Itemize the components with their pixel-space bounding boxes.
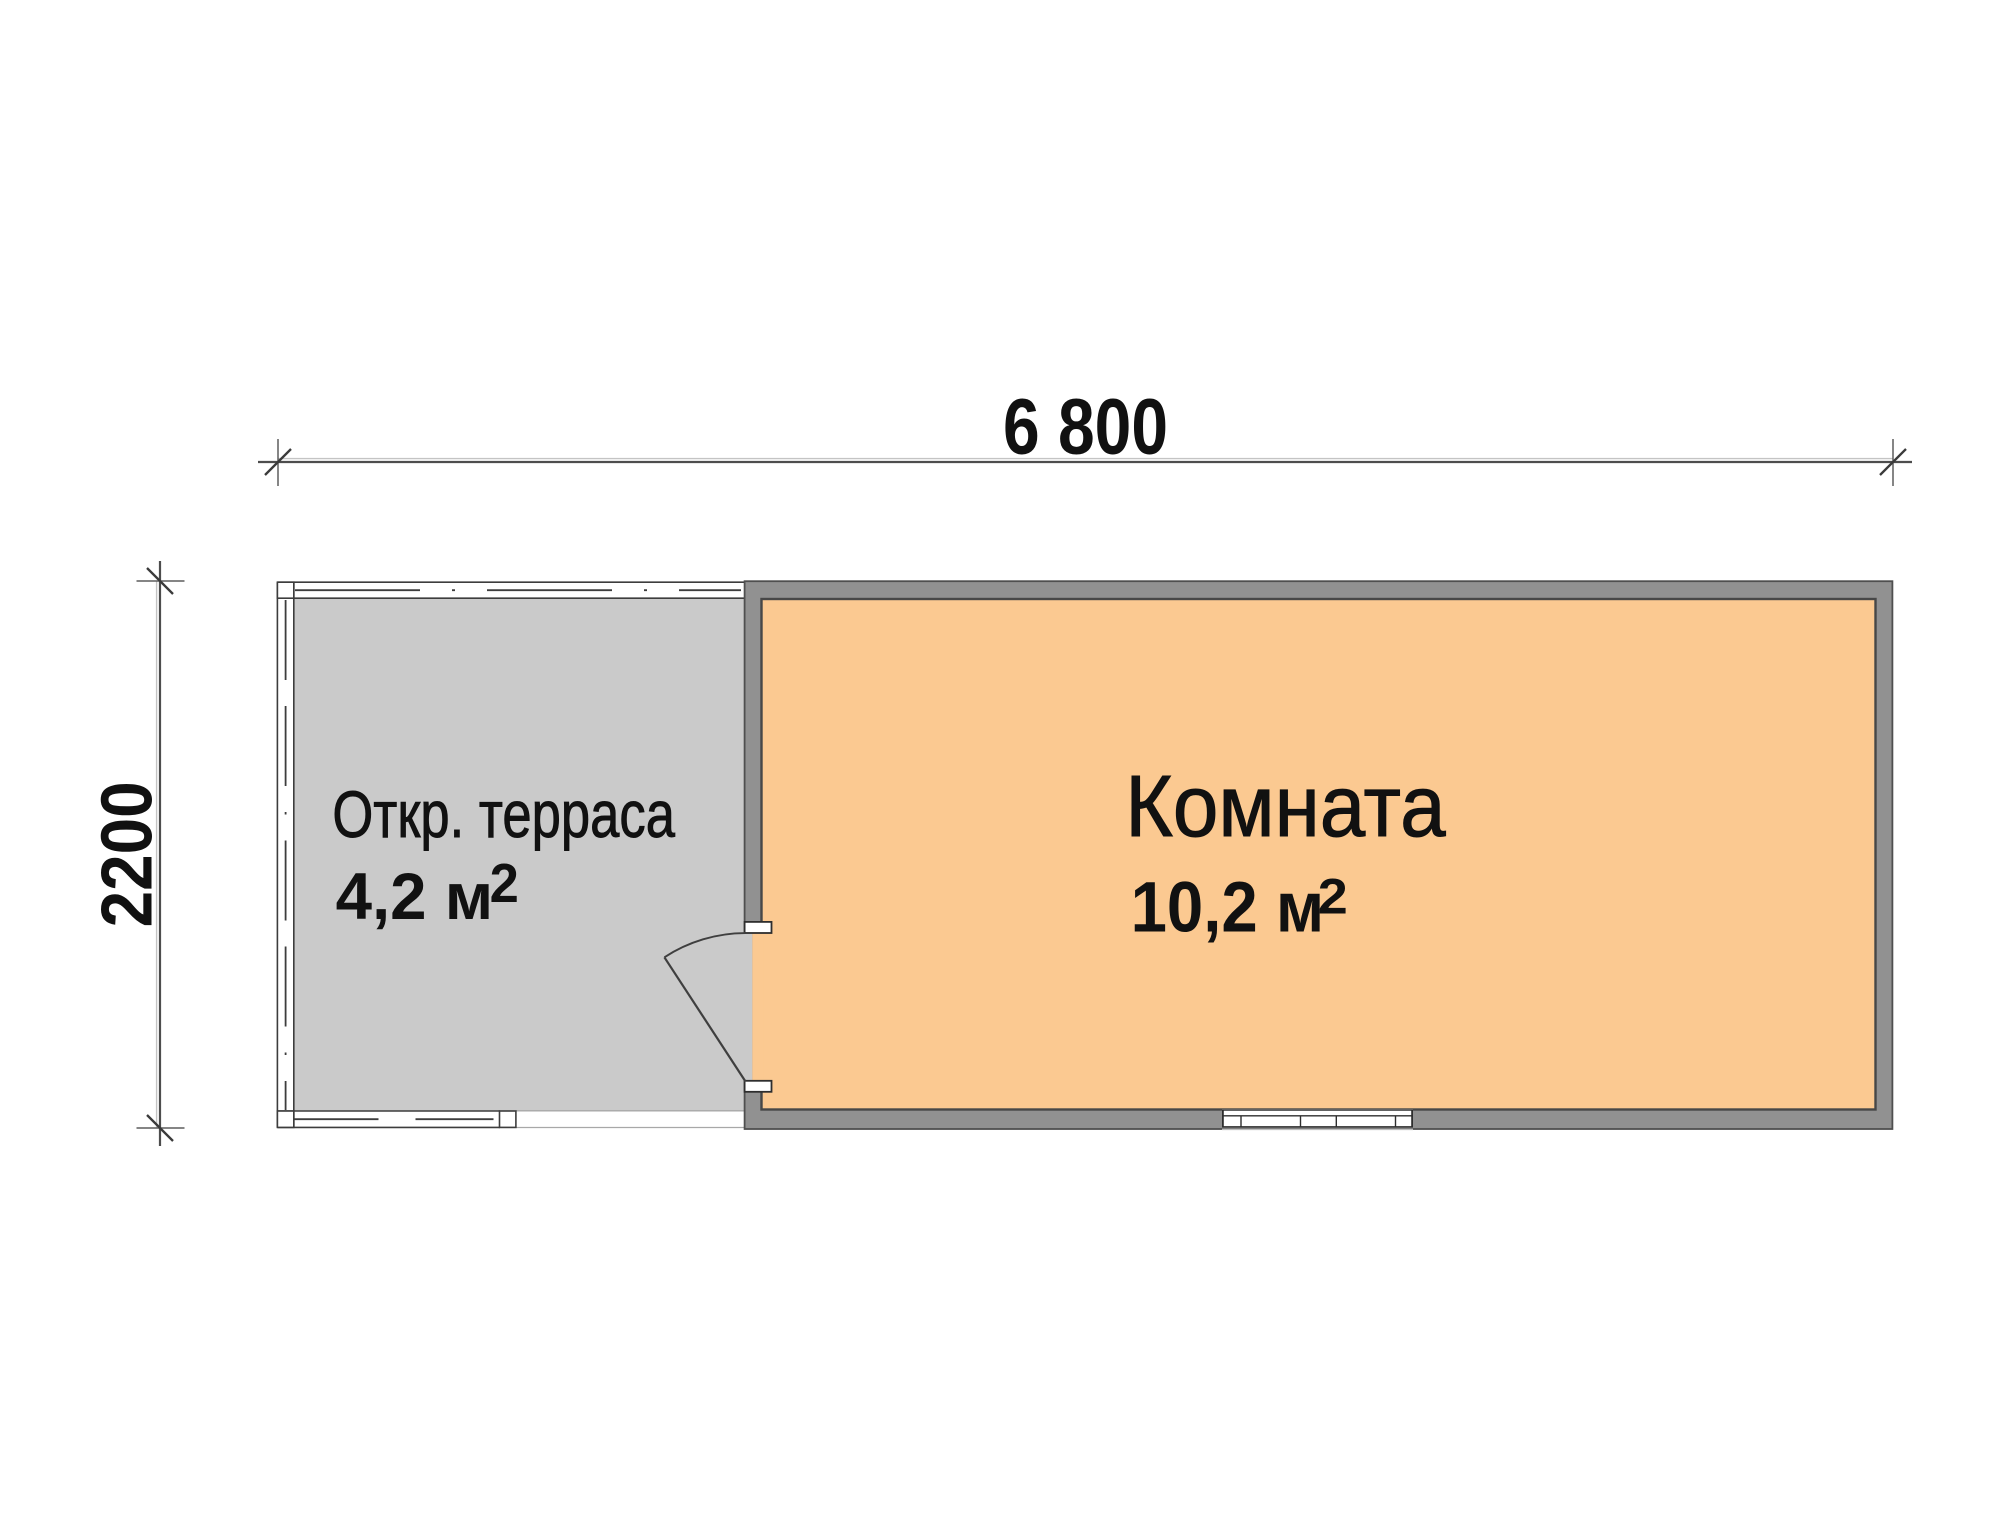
svg-text:10,2 м: 10,2 м — [1131, 869, 1325, 948]
svg-text:2: 2 — [490, 853, 519, 914]
svg-text:2: 2 — [1318, 869, 1348, 925]
svg-text:4,2 м: 4,2 м — [336, 860, 494, 933]
svg-text:6 800: 6 800 — [1003, 383, 1168, 471]
svg-text:Откр. терраса: Откр. терраса — [332, 777, 675, 851]
svg-text:2200: 2200 — [87, 781, 168, 927]
svg-text:Комната: Комната — [1125, 758, 1446, 855]
